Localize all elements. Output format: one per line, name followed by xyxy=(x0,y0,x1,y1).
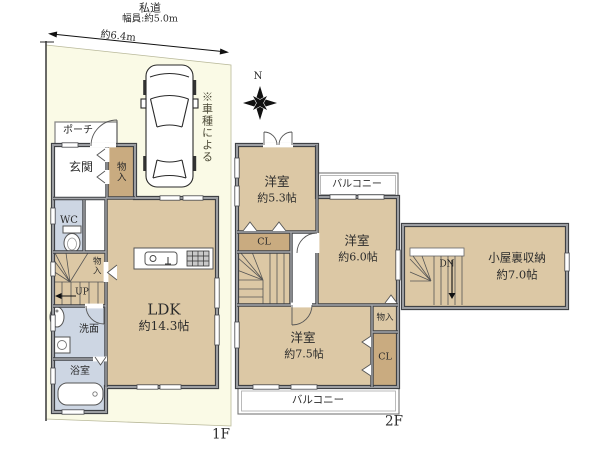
ldk-label: LDK xyxy=(147,303,180,318)
ldk-size-label: 約14.3帖 xyxy=(139,320,190,332)
bathroom-label: 浴室 xyxy=(70,367,90,377)
stairs-closet-label: 物入 xyxy=(92,257,101,276)
entrance-label: 玄関 xyxy=(69,161,93,173)
washing-machine-icon xyxy=(54,337,70,353)
kitchen-counter xyxy=(134,248,213,269)
porch-label: ポーチ xyxy=(63,126,93,136)
washroom-label: 洗面 xyxy=(79,325,99,335)
floor1-label: 1F xyxy=(212,428,230,442)
bathtub-icon xyxy=(58,383,103,405)
floor-plan-drawing xyxy=(0,0,600,450)
room-large-label: 洋室 xyxy=(290,332,315,345)
compass-icon xyxy=(243,86,277,120)
car-note: ※車種による xyxy=(202,91,213,163)
road-label: 私道 xyxy=(139,3,161,14)
up-label: UP xyxy=(75,289,89,298)
attic-size-label: 約7.0帖 xyxy=(496,269,537,281)
room-large-size: 約7.5帖 xyxy=(284,349,324,360)
stove-icon xyxy=(187,251,209,266)
compass-north-label: N xyxy=(254,72,263,82)
toilet-icon xyxy=(63,226,81,253)
wc-label: WC xyxy=(60,216,78,226)
entrance-closet-label: 物入 xyxy=(115,162,125,183)
floor2-label: 2F xyxy=(385,415,403,429)
attic-rooms xyxy=(403,225,567,308)
room-mid-label: 洋室 xyxy=(344,235,369,248)
dn-label: DN xyxy=(439,261,454,270)
attic-name-label: 小屋裏収納 xyxy=(488,252,546,264)
room-small-size: 約5.3帖 xyxy=(257,193,297,204)
attic-window xyxy=(565,253,569,271)
floor-plan-page: 私道 幅員:約5.0m 約6.4m N ※車種による 1F 2F ポーチ 玄関 … xyxy=(0,0,600,450)
room-mid-size: 約6.0帖 xyxy=(338,252,378,263)
storage-2f-label: 物入 xyxy=(376,314,393,323)
road-width-label: 幅員:約5.0m xyxy=(122,14,178,24)
balcony-bottom-label: バルコニー xyxy=(292,395,344,406)
car-icon xyxy=(141,65,198,187)
closet-left-label: CL xyxy=(257,237,271,247)
closet-right-label: CL xyxy=(378,352,392,362)
room-small-label: 洋室 xyxy=(264,176,289,189)
balcony-top-label: バルコニー xyxy=(332,180,382,190)
